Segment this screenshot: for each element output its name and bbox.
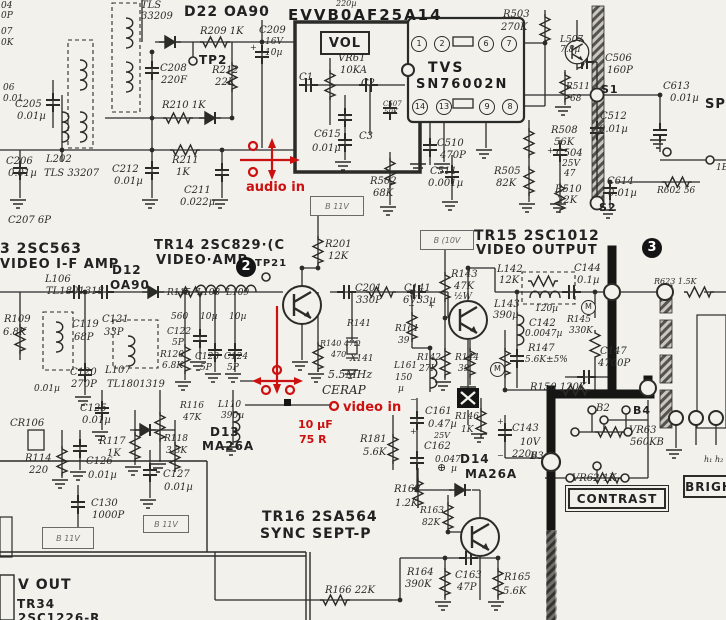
ic-pin-13: 13	[436, 99, 452, 115]
transistor-sound	[565, 40, 589, 64]
ic-pin-14: 14	[412, 99, 428, 115]
schematic-artwork	[0, 0, 726, 620]
vol-box: VOL	[320, 31, 370, 55]
shield-bar	[592, 6, 604, 204]
transistor-tr16	[461, 518, 499, 556]
capacitors	[13, 45, 667, 565]
ic-pin-9: 9	[479, 99, 495, 115]
x-marker	[457, 388, 479, 408]
transistor-tr14	[283, 286, 321, 324]
bright-box: BRIGH	[683, 475, 726, 498]
contrast-box: CONTRAST	[568, 488, 666, 509]
supply-box-b11v-mid: B 11V	[143, 515, 189, 533]
ic-pin-2: 2	[434, 36, 450, 52]
bold-video-bus	[551, 250, 650, 620]
black-node-square	[284, 399, 291, 406]
supply-box-b11v-top: B 11V	[310, 196, 364, 216]
supply-box-b10v: B (10V	[420, 230, 474, 250]
section-marker-2: 2	[236, 257, 256, 277]
section-marker-3: 3	[642, 238, 662, 258]
module-name-label: EVVB0AF25A14	[288, 6, 443, 24]
crystal-x141	[28, 338, 358, 450]
ic-pin-7: 7	[501, 36, 517, 52]
ic-pin-8: 8	[502, 99, 518, 115]
ic-name-line1: TVS	[428, 60, 464, 76]
ic-pin-1: 1	[411, 36, 427, 52]
ic-pin-6: 6	[478, 36, 494, 52]
red-annotations	[240, 142, 338, 410]
transistor-tr15	[449, 301, 487, 339]
supply-box-b11v-left: B 11V	[42, 527, 94, 549]
ic-name-line2: SN76002N	[416, 77, 508, 92]
wire-network	[0, 0, 726, 600]
schematic-page: VOL B 11V B (10V B 11V B 11V CONTRAST BR…	[0, 0, 726, 620]
